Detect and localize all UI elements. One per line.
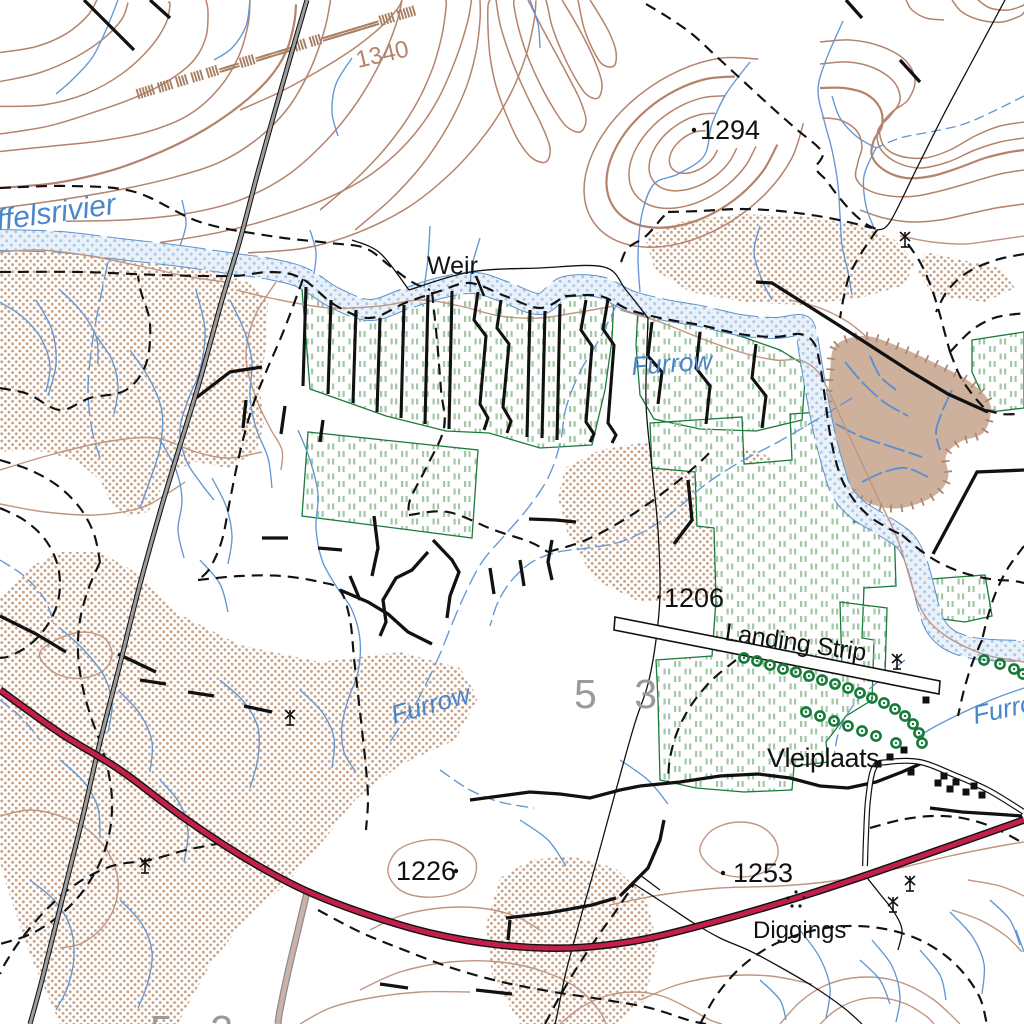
svg-text:1253: 1253	[733, 858, 793, 888]
svg-text:1294: 1294	[700, 115, 760, 145]
svg-text:1206: 1206	[664, 583, 724, 613]
svg-text:Vleiplaats: Vleiplaats	[767, 743, 879, 773]
svg-text:Diggings: Diggings	[753, 917, 846, 944]
svg-text:1226: 1226	[396, 856, 456, 886]
svg-text:Weir: Weir	[427, 252, 478, 280]
svg-text:5 3: 5 3	[574, 671, 670, 717]
svg-text:Furrow: Furrow	[630, 345, 715, 381]
svg-text:5 2: 5 2	[150, 1007, 246, 1024]
